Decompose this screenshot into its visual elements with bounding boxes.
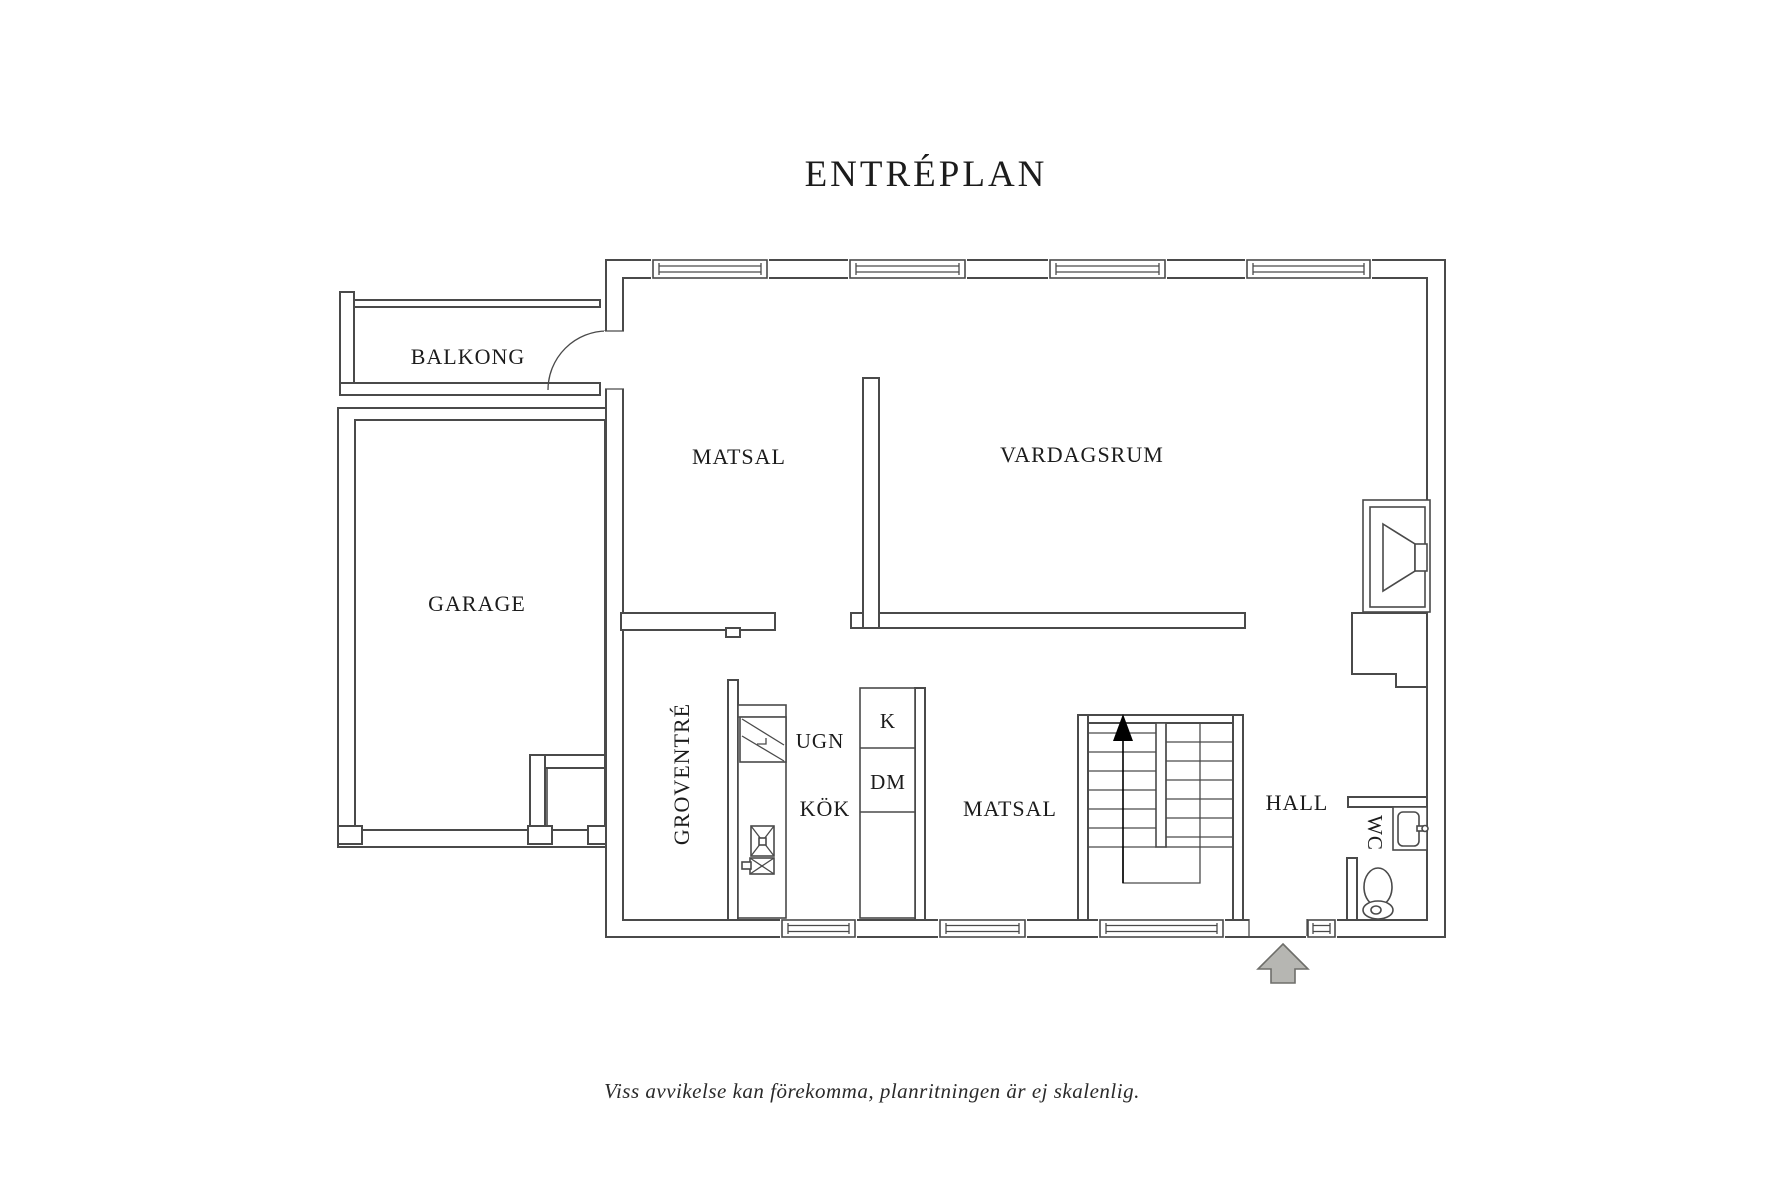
appliance-label-diskmaskin: DM [870,770,906,794]
stairs-divider [1156,723,1166,847]
room-label-hall: HALL [1266,790,1329,815]
wall-wc-north [1348,797,1427,807]
room-label-garage: GARAGE [428,591,526,616]
room-label-vardagsrum: VARDAGSRUM [1000,442,1164,467]
wall-groventre-kok [728,680,738,920]
window-icon [780,918,857,939]
window-icon [1306,918,1337,939]
fireplace-icon [1363,500,1430,612]
floor-plan: BALKONG GARAGE [0,0,1780,1187]
room-label-matsal-lower: MATSAL [963,796,1057,821]
entrance-arrow-icon [1258,944,1308,983]
hob-icon [751,826,774,856]
room-balkong: BALKONG [340,292,607,395]
entrance-opening [1249,919,1307,936]
kitchen: K DM UGN KÖK [738,688,915,918]
stair-treads [1088,733,1156,847]
stairs-top-wall [1078,715,1243,723]
garage-pillar [528,826,552,844]
stair-upper-flight [1166,723,1233,847]
wall-notch [726,628,740,637]
wall-matsal-south-left [621,613,775,630]
closet-below-fireplace [1352,613,1427,687]
stairs-right-wall [1233,715,1243,920]
room-label-kok: KÖK [800,796,851,821]
balcony-door-opening [604,331,625,389]
room-label-groventre: GROVENTRÉ [669,703,694,845]
tall-cabinets: K DM [860,688,915,918]
window-icon [1048,258,1167,280]
balcony-bottom-wall [340,383,600,395]
garage-niche-left-wall [530,755,545,830]
wall-matsal-vardagsrum [863,378,879,628]
appliance-label-kyl: K [880,709,896,733]
stairs [1078,714,1243,920]
window-icon [848,258,967,280]
balcony-door-swing-icon [548,331,607,390]
window-icon [651,258,769,280]
window-icon [1098,918,1225,939]
room-label-wc: WC [1363,815,1387,851]
room-garage: GARAGE [338,408,618,847]
balcony-left-wall [340,292,354,395]
toilet-icon [1363,868,1393,919]
wall-kok-matsal [915,688,925,920]
window-icon [938,918,1027,939]
room-label-balkong: BALKONG [411,344,526,369]
garage-niche [547,768,605,830]
room-wc: WC [1363,807,1428,919]
floor-plan-page: BALKONG GARAGE [0,0,1780,1187]
page-title: ENTRÉPLAN [805,153,1048,195]
disclaimer-text: Viss avvikelse kan förekomma, planritnin… [604,1079,1140,1103]
window-icon [1245,258,1372,280]
appliance-label-ugn: UGN [796,729,845,753]
sink-icon [1393,807,1428,850]
stairs-left-wall [1078,715,1088,920]
stairs-up-arrow-icon [1113,714,1133,883]
balcony-railing [354,300,600,307]
garage-pillar [338,826,362,844]
room-label-matsal-upper: MATSAL [692,444,786,469]
wall-wc-west [1347,858,1357,920]
garage-walls [338,408,618,847]
stair-landing [1123,847,1200,883]
wall-vardagsrum-south [851,613,1245,628]
